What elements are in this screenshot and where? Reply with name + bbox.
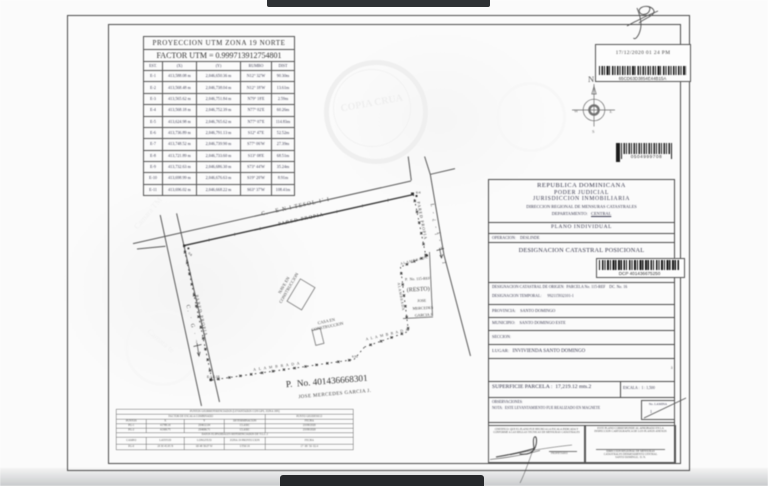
svg-text:P. No. 115-REF: P. No. 115-REF <box>405 276 431 281</box>
svg-text:E: E <box>610 109 613 114</box>
svg-text:(RESTO): (RESTO) <box>407 285 430 293</box>
svg-text:E-1 E-16: E-1 E-16 <box>207 375 220 379</box>
svg-text:A L A M B R A D A: A L A M B R A D A <box>253 361 301 372</box>
svg-text:JOSE: JOSE <box>417 299 427 303</box>
svg-text:S: S <box>592 129 595 134</box>
svg-text:MERCEDES: MERCEDES <box>412 306 433 311</box>
svg-text:PARED PROPIA: PARED PROPIA <box>278 213 325 228</box>
svg-text:JOSE MERCEDES GARCIA J.: JOSE MERCEDES GARCIA J. <box>298 389 371 400</box>
svg-text:0.6: 0.6 <box>187 251 193 257</box>
svg-text:ALAMBRADA: ALAMBRADA <box>400 255 429 266</box>
svg-text:1 - × - 1: 1 - × - 1 <box>435 231 447 266</box>
svg-text:W: W <box>574 109 579 114</box>
svg-text:6.51: 6.51 <box>352 355 358 359</box>
svg-text:N: N <box>588 74 594 84</box>
svg-text:E-6: E-6 <box>416 191 421 195</box>
svg-text:P. No. 401436668301: P. No. 401436668301 <box>286 373 369 389</box>
